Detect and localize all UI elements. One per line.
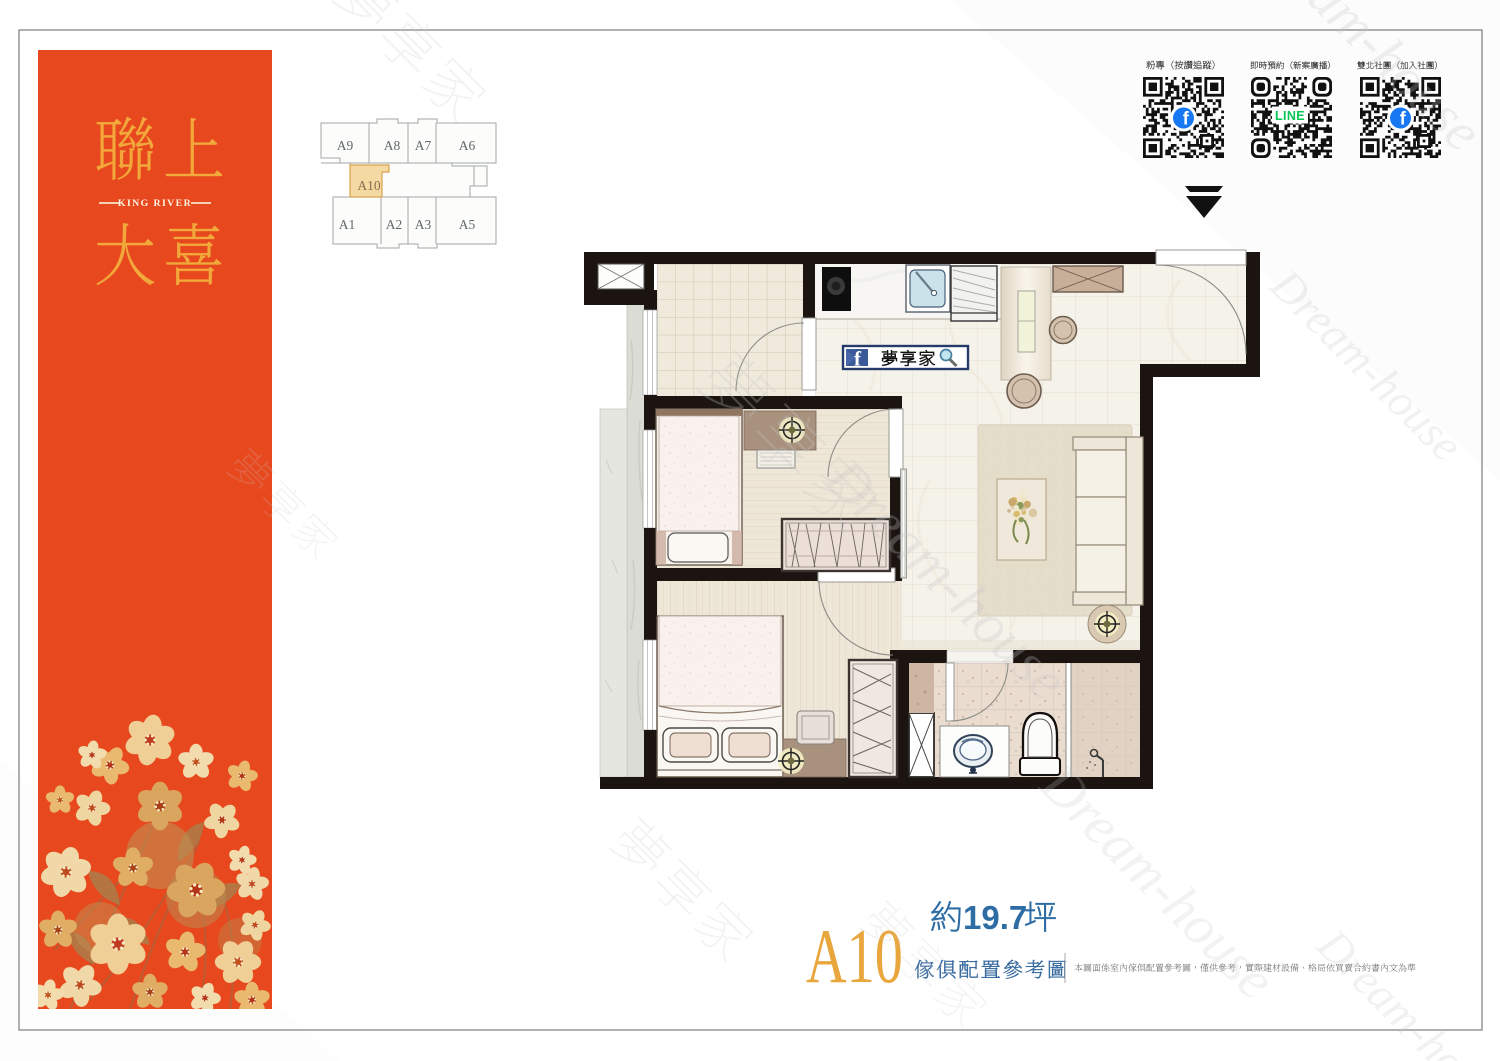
svg-text:f: f [854, 347, 862, 371]
svg-text:A7: A7 [415, 138, 432, 153]
svg-text:A5: A5 [459, 217, 476, 232]
svg-text:LINE: LINE [1275, 109, 1305, 123]
svg-text:A9: A9 [337, 138, 354, 153]
svg-text:19.7: 19.7 [963, 899, 1027, 936]
svg-text:A1: A1 [339, 217, 356, 232]
svg-text:A6: A6 [459, 138, 476, 153]
svg-text:f: f [1183, 109, 1190, 129]
svg-text:A3: A3 [415, 217, 432, 232]
svg-text:KING RIVER: KING RIVER [118, 198, 192, 209]
svg-text:A2: A2 [386, 217, 403, 232]
svg-text:A10: A10 [806, 913, 903, 999]
svg-text:A8: A8 [384, 138, 401, 153]
svg-text:A10: A10 [357, 178, 380, 193]
